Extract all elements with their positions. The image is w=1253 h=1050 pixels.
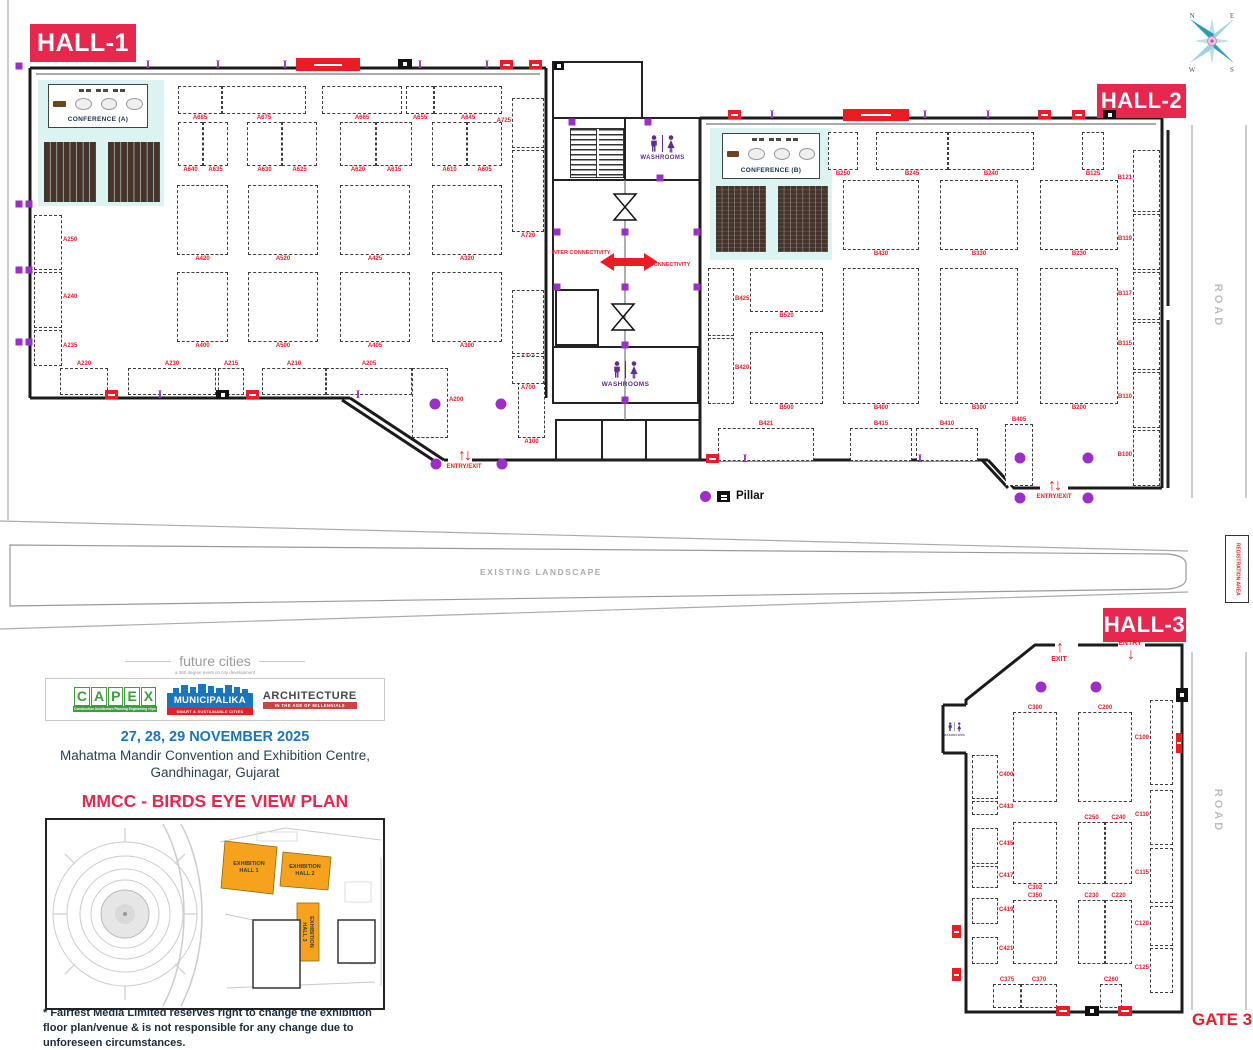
architecture-logo: ARCHITECTURE IN THE AGE OF MILLENNIALS (263, 690, 357, 709)
washrooms-hall3: WASHROOMS (944, 707, 965, 751)
hall-2-label: HALL-2 (1097, 84, 1186, 118)
exhibition-floor-plan: HALL-1 HALL-2 HALL-3 CONFERENCE (A) CONF… (0, 0, 1253, 1050)
capex-letter: P (108, 687, 123, 705)
capex-letter: A (91, 687, 107, 705)
compass-n: N (1189, 12, 1194, 20)
entry-exit-arrows-icon: ↑↓ (458, 448, 470, 464)
entry-exit-label: ENTRY/EXIT (446, 464, 481, 470)
municipalika-tagline: SMART & SUSTAINABLE CITIES (167, 708, 253, 715)
stairs-icon (570, 128, 624, 178)
conference-b-room: CONFERENCE (B) (722, 133, 820, 179)
chair-icon (101, 98, 118, 110)
compass-rose-icon: N E W S (1184, 8, 1240, 74)
venue-line-1: Mahatma Mandir Convention and Exhibition… (45, 748, 385, 763)
inter-connectivity-label: INTER CONNECTIVITY (630, 262, 692, 269)
compass-e: E (1230, 12, 1234, 20)
exit-arrow-icon: ↑ (1056, 640, 1062, 656)
inter-connectivity-label: INTER CONNECTIVITY (550, 250, 612, 257)
head-table-icon (727, 148, 815, 160)
capex-tagline: Construction Architecture Planning Engin… (73, 706, 157, 712)
logo-strip: CAPEX Construction Architecture Planning… (45, 678, 385, 721)
chair-icon (75, 98, 92, 110)
architecture-name: ARCHITECTURE (263, 690, 357, 702)
washrooms-label: WASHROOMS (640, 155, 684, 161)
hall3-walls (943, 645, 1182, 1012)
municipalika-logo: MUNICIPALIKA SMART & SUSTAINABLE CITIES (167, 684, 253, 715)
city-skyline-icon (167, 684, 253, 693)
future-cities-tagline: a 360 degree event on city development (45, 670, 385, 675)
road-label: ROAD (1212, 789, 1224, 833)
head-table-icon (53, 98, 143, 110)
pillar-circle-icon (700, 491, 711, 502)
table-mics-icon (752, 138, 791, 141)
capex-letter: E (124, 687, 139, 705)
chair-icon (799, 148, 815, 160)
washrooms-top: WASHROOMS (627, 120, 698, 176)
capex-letter: C (74, 687, 90, 705)
table-mics-icon (79, 89, 118, 92)
event-brand-block: future cities a 360 degree event on city… (45, 653, 385, 780)
architecture-tagline: IN THE AGE OF MILLENNIALS (263, 702, 357, 709)
existing-landscape-label: EXISTING LANDSCAPE (480, 567, 602, 577)
hall3-exit: ↑ EXIT (1044, 640, 1074, 663)
capex-letter: X (141, 687, 156, 705)
registration-area-box: REGISTRATION AREA (1225, 535, 1249, 603)
event-dates: 27, 28, 29 NOVEMBER 2025 (45, 729, 385, 745)
washroom-people-icon (947, 722, 963, 732)
disclaimer-text: * Fairfest Media Limited reserves right … (43, 1006, 395, 1050)
gate-3-label: GATE 3 (1192, 1010, 1252, 1030)
chair-icon (748, 148, 764, 160)
conference-a-room: CONFERENCE (A) (48, 84, 148, 128)
pillar-square-icon (717, 491, 730, 502)
conference-b-seating (716, 186, 828, 252)
road-label: ROAD (1212, 284, 1224, 328)
entry-arrow-icon: ↓ (1127, 647, 1133, 663)
washroom-people-icon (611, 361, 641, 379)
pillar-legend-label: Pillar (736, 490, 764, 502)
capex-logo: CAPEX Construction Architecture Planning… (73, 687, 157, 711)
conference-b-label: CONFERENCE (B) (741, 167, 802, 174)
conference-a-label: CONFERENCE (A) (68, 116, 129, 123)
washrooms-label: WASHROOMS (602, 381, 650, 388)
washroom-people-icon (648, 135, 678, 153)
compass-w: W (1189, 66, 1196, 74)
podium-icon (53, 101, 66, 107)
venue-line-2: Gandhinagar, Gujarat (45, 765, 385, 780)
washrooms-bottom: WASHROOMS (555, 349, 696, 399)
chair-icon (126, 98, 143, 110)
hall3-entry: ENTRY ↓ (1112, 640, 1148, 663)
compass-s: S (1230, 66, 1234, 74)
entry-exit-arrows-icon: ↑↓ (1048, 478, 1060, 494)
hall-3-label: HALL-3 (1103, 608, 1186, 642)
municipalika-name: MUNICIPALIKA (167, 693, 253, 708)
pillar-legend: Pillar (700, 490, 764, 502)
birdseye-map: EXHIBITIONHALL 1 EXHIBITIONHALL 2 EXHIBI… (45, 818, 385, 1010)
hall2-entry-exit: ↑↓ ENTRY/EXIT (1028, 478, 1080, 500)
future-cities-label: future cities (45, 653, 385, 669)
birdseye-title: MMCC - BIRDS EYE VIEW PLAN (45, 791, 385, 812)
chair-icon (774, 148, 790, 160)
hall-1-label: HALL-1 (30, 24, 136, 62)
washrooms-label: WASHROOMS (944, 734, 965, 737)
exit-label: EXIT (1051, 656, 1067, 663)
registration-area-label: REGISTRATION AREA (1234, 543, 1241, 596)
conference-a-seating (44, 142, 160, 202)
hall1-entry-exit: ↑↓ ENTRY/EXIT (438, 448, 490, 470)
podium-icon (727, 151, 739, 157)
entry-exit-label: ENTRY/EXIT (1036, 494, 1071, 500)
